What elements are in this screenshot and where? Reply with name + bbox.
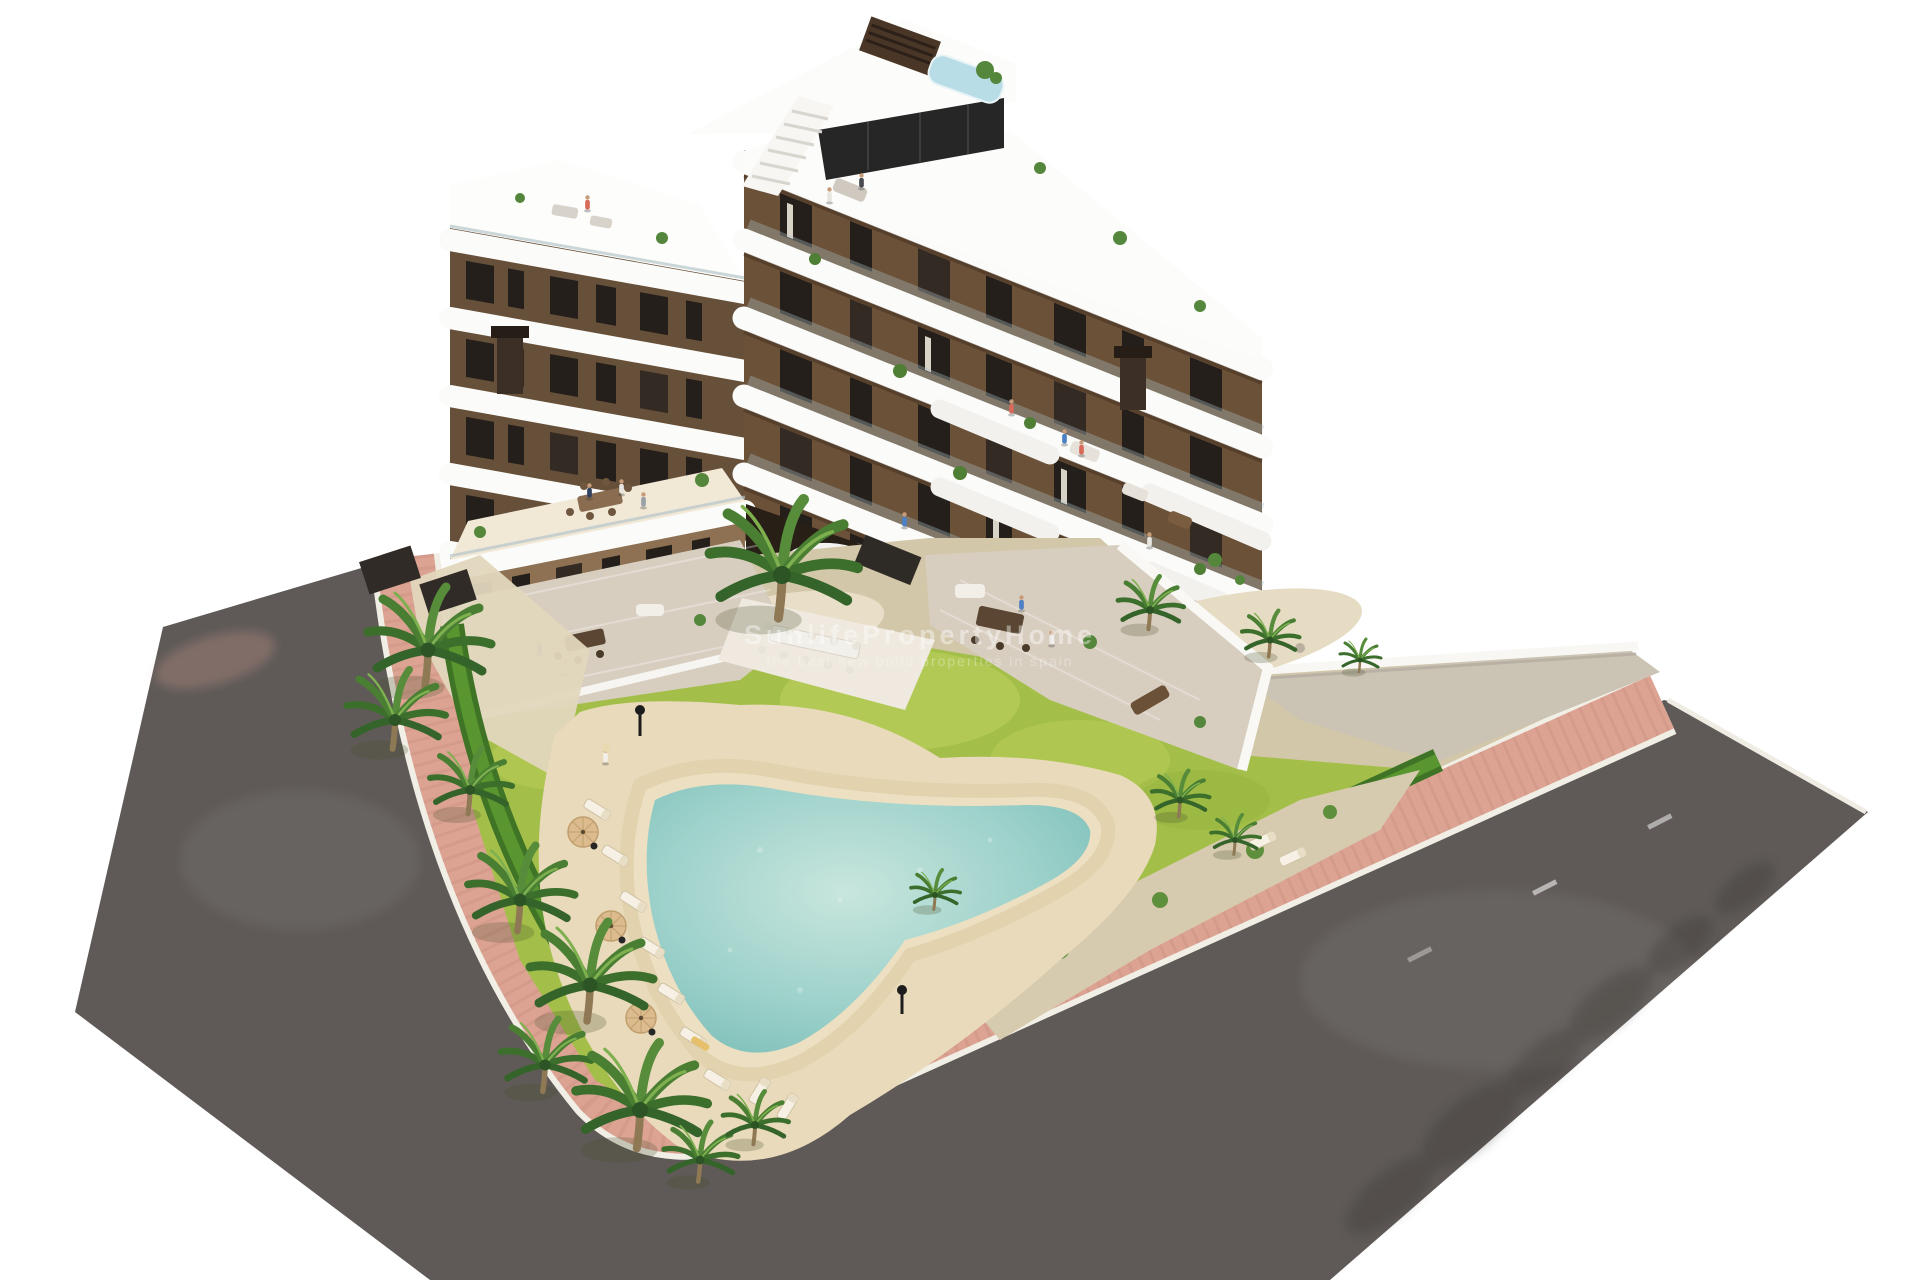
render-canvas: SunlifePropertyHome the best new build p… bbox=[0, 0, 1920, 1280]
watermark: SunlifePropertyHome the best new build p… bbox=[744, 620, 1096, 669]
roof-plant bbox=[656, 232, 668, 244]
aerial-render: SunlifePropertyHome the best new build p… bbox=[0, 0, 1920, 1280]
roof-plant bbox=[515, 193, 525, 203]
watermark-line2: the best new build properties in spain bbox=[766, 653, 1073, 669]
outdoor-sofa bbox=[955, 584, 985, 598]
sun-hat bbox=[602, 744, 610, 752]
outdoor-sofa bbox=[636, 604, 664, 616]
watermark-line1: SunlifePropertyHome bbox=[744, 620, 1096, 650]
parasol bbox=[568, 817, 598, 847]
